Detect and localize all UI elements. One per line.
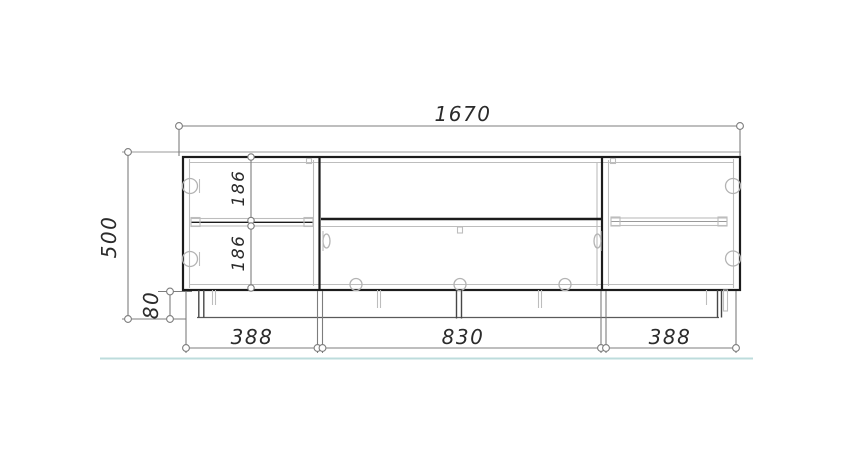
dim-endpoint <box>248 154 254 160</box>
legs <box>197 290 728 319</box>
technical-drawing-canvas: 1670 500 80 <box>0 0 856 461</box>
dim-endpoint <box>167 288 174 295</box>
middle-section <box>321 219 601 291</box>
dim-endpoint <box>167 316 174 323</box>
left-section-width-label: 388 <box>231 325 274 349</box>
overall-width-label: 1670 <box>435 102 492 126</box>
dim-endpoint <box>733 345 740 352</box>
dimension-overall-width: 1670 <box>176 102 744 156</box>
dim-endpoint <box>125 316 132 323</box>
plinth-height-label: 80 <box>139 291 163 319</box>
leg-peg <box>724 290 728 311</box>
drawer-fitting-mark <box>458 227 463 233</box>
cabinet-body <box>183 157 740 290</box>
dim-endpoint <box>176 123 183 130</box>
dim-endpoint <box>319 345 326 352</box>
upper-compartment-label: 186 <box>229 170 249 207</box>
right-section-width-label: 388 <box>649 325 692 349</box>
dim-endpoint <box>183 345 190 352</box>
center-section-width-label: 830 <box>442 325 485 349</box>
drawer-slide-icon <box>323 234 330 248</box>
dimension-plinth-height: 80 <box>139 288 192 322</box>
overall-height-label: 500 <box>97 216 121 259</box>
dim-endpoint <box>125 149 132 156</box>
lower-compartment-label: 186 <box>229 235 249 272</box>
right-section <box>611 159 741 267</box>
left-section: 186 186 <box>183 154 314 291</box>
dim-endpoint <box>248 223 254 229</box>
cabinet-drawing: 1670 500 80 <box>0 0 856 461</box>
dim-endpoint <box>248 285 254 291</box>
dim-endpoint <box>737 123 744 130</box>
cabinet-outline <box>183 157 740 290</box>
dim-endpoint <box>603 345 610 352</box>
